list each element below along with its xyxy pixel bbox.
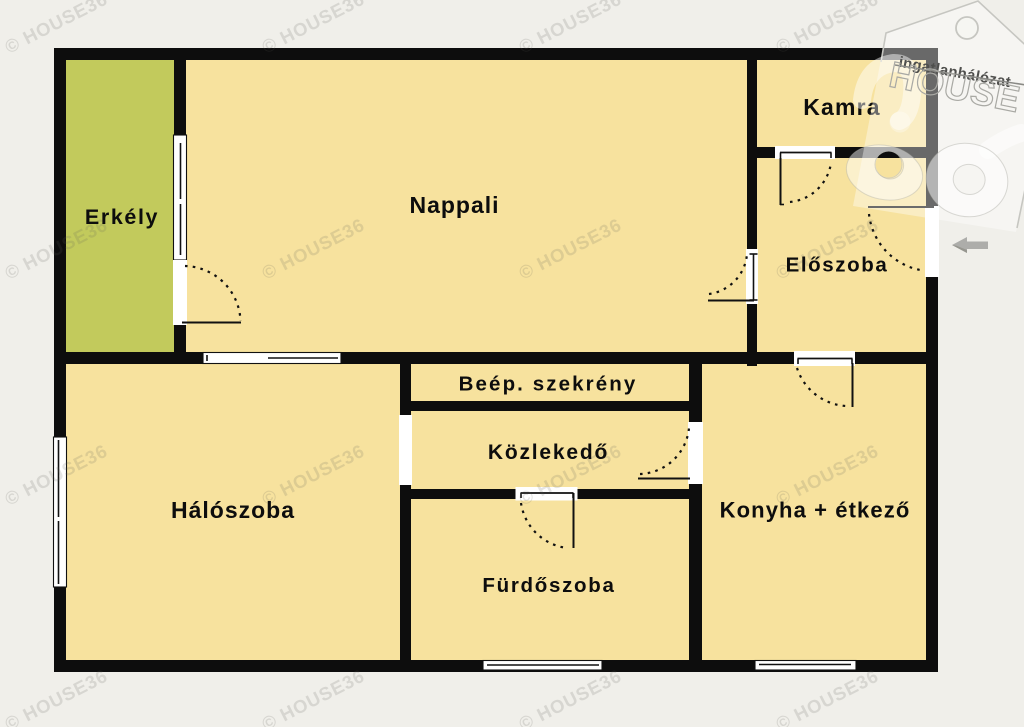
- svg-text:Előszoba: Előszoba: [786, 254, 889, 277]
- svg-text:Közlekedő: Közlekedő: [488, 441, 609, 464]
- svg-text:Erkély: Erkély: [85, 205, 159, 229]
- svg-text:Hálószoba: Hálószoba: [171, 497, 295, 523]
- svg-text:Fürdőszoba: Fürdőszoba: [482, 574, 615, 597]
- svg-text:Konyha + étkező: Konyha + étkező: [720, 498, 911, 523]
- svg-text:Beép. szekrény: Beép. szekrény: [459, 373, 638, 396]
- svg-text:Nappali: Nappali: [409, 192, 499, 218]
